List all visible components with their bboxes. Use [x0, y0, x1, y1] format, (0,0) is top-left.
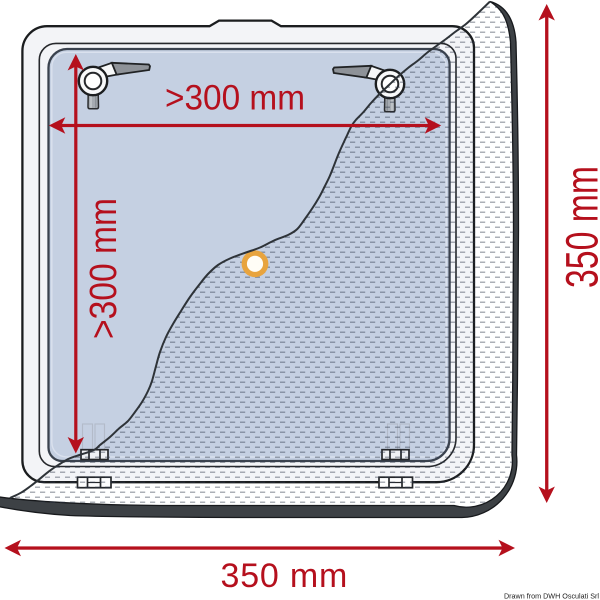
svg-text:>300 mm: >300 mm — [83, 198, 125, 339]
svg-text:Drawn from DWH Osculati Srl: Drawn from DWH Osculati Srl — [504, 592, 599, 600]
svg-text:350 mm: 350 mm — [221, 557, 349, 595]
svg-text:350 mm: 350 mm — [557, 166, 600, 288]
svg-text:>300 mm: >300 mm — [165, 79, 305, 118]
